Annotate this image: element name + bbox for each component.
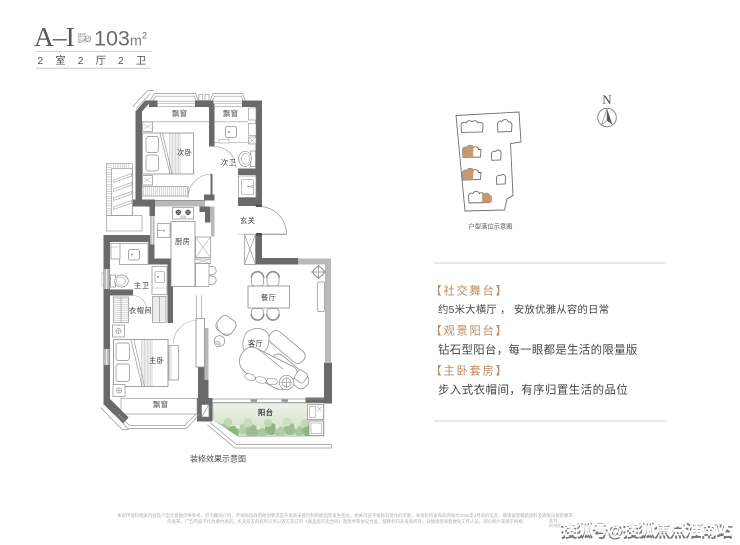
svg-text:步入式衣帽间，有序归置生活的品位: 步入式衣帽间，有序归置生活的品位	[438, 383, 628, 397]
svg-text:A–I: A–I	[34, 21, 75, 52]
svg-text:2室2厅2卫: 2室2厅2卫	[38, 54, 159, 67]
svg-text:阳台: 阳台	[258, 408, 273, 417]
svg-text:飘窗: 飘窗	[223, 109, 238, 118]
svg-text:N: N	[602, 92, 612, 107]
svg-text:约5米大横厅 ， 安放优雅从容的日常: 约5米大横厅 ， 安放优雅从容的日常	[438, 303, 609, 316]
svg-text:户型落位示意图: 户型落位示意图	[468, 222, 512, 231]
svg-text:次卫: 次卫	[221, 158, 236, 167]
svg-text:【社交舞台】: 【社交舞台】	[431, 284, 509, 298]
svg-text:【观景阳台】: 【观景阳台】	[431, 324, 509, 338]
svg-text:【主卧套房】: 【主卧套房】	[431, 365, 509, 378]
svg-text:搜狐号@搜狐焦点淮南站: 搜狐号@搜狐焦点淮南站	[561, 519, 732, 538]
svg-text:次卧: 次卧	[177, 148, 192, 157]
svg-text:餐厅: 餐厅	[261, 293, 276, 302]
svg-text:约: 约	[86, 35, 90, 41]
svg-text:钻石型阳台，每一眼都是生活的限量版: 钻石型阳台，每一眼都是生活的限量版	[438, 343, 638, 357]
svg-text:网络图: 网络图	[549, 522, 562, 529]
svg-text:客厅: 客厅	[248, 339, 263, 348]
svg-text:主卫: 主卫	[134, 281, 149, 290]
svg-text:厨房: 厨房	[175, 237, 190, 246]
svg-text:飘窗: 飘窗	[172, 109, 187, 118]
svg-text:飘窗: 飘窗	[153, 400, 168, 409]
svg-text:的发布，广告内容不作为要约承诺，买卖双方的权利义务以双方签订: 的发布，广告内容不作为要约承诺，买卖双方的权利义务以双方签订的《商品房买卖合同》…	[167, 518, 523, 525]
svg-text:本宣传资料相关内容及户型示意图仅供参考，仅为概况介绍，不排除: 本宣传资料相关内容及户型示意图仅供参考，仅为概况介绍，不排除因政府规划要求及开发…	[117, 512, 573, 519]
svg-text:玄关: 玄关	[240, 216, 255, 225]
svg-text:装修效果示意图: 装修效果示意图	[190, 454, 246, 464]
svg-text:衣帽间: 衣帽间	[129, 306, 152, 315]
svg-text:主卧: 主卧	[149, 356, 164, 365]
